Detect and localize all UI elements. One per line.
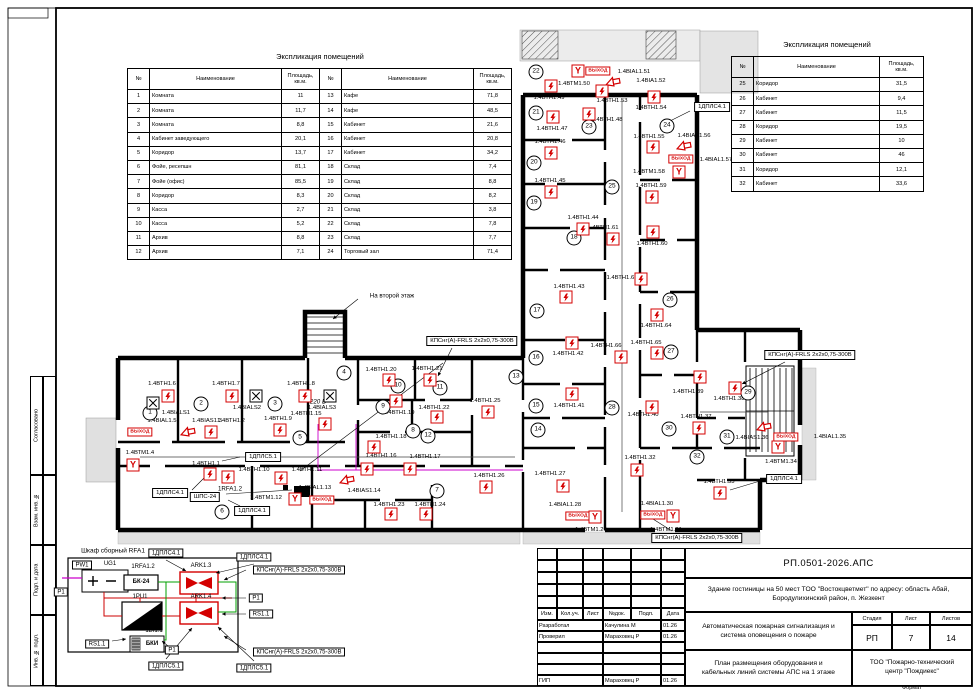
- signature-row: [537, 560, 685, 572]
- cabinet-label: P1: [54, 588, 68, 597]
- signature-row: [537, 664, 685, 675]
- cabinet-label: P1: [249, 594, 263, 603]
- signature-cell: [537, 548, 557, 560]
- signature-row: ГИПМараховец Р01.26: [537, 675, 685, 686]
- frame-side-cell: [43, 615, 56, 686]
- signature-cell: [537, 664, 603, 675]
- signature-header-cell: №док.: [603, 608, 631, 620]
- frame-side-label: Взам. инв. №: [30, 475, 43, 545]
- signature-cell: [631, 560, 661, 572]
- frame-side-label: Инв. № подл.: [30, 615, 43, 686]
- signature-row: [537, 642, 685, 653]
- signature-cell: [603, 642, 661, 653]
- signature-cell: [557, 572, 583, 584]
- cabinet-label: 1RFA1.2: [131, 564, 154, 570]
- cabinet-label: PW1: [72, 561, 92, 570]
- signature-cell: [603, 572, 631, 584]
- frame-side-cell: [43, 545, 56, 615]
- signature-row: Изм.Кол.уч.Лист№док.Подп.Дата: [537, 608, 685, 620]
- signature-header-cell: Подп.: [631, 608, 661, 620]
- cabinet-label: RS1.1: [85, 640, 109, 649]
- signature-cell: Качулина М: [603, 620, 661, 631]
- doc-code-cell: РП.0501-2026.АПС: [685, 548, 972, 578]
- signature-cell: [661, 596, 685, 608]
- signature-header-cell: Изм.: [537, 608, 557, 620]
- cabinet-title: Шкаф сборный RFA1: [81, 548, 145, 555]
- signature-cell: [631, 596, 661, 608]
- cabinet-label: UG1: [104, 561, 116, 567]
- signature-table: Изм.Кол.уч.Лист№док.Подп.ДатаРазработалК…: [537, 548, 685, 686]
- cabinet-label: 1ДПЛС4.1: [236, 553, 271, 562]
- company-cell: ТОО "Пожарно-технический центр "Пождиекс…: [852, 650, 972, 686]
- sheets-value: 14: [930, 625, 972, 650]
- signature-cell: [583, 596, 603, 608]
- signature-header-cell: Лист: [583, 608, 603, 620]
- title-block: Изм.Кол.уч.Лист№док.Подп.ДатаРазработалК…: [537, 548, 972, 686]
- signature-cell: [661, 642, 685, 653]
- signature-cell: [583, 560, 603, 572]
- signature-cell: [661, 653, 685, 664]
- cabinet-label: ARK1.4: [191, 594, 212, 600]
- signature-cell: 01.26: [661, 631, 685, 642]
- frame-side-cell: [43, 475, 56, 545]
- project-title-cell: Автоматическая пожарная сигнализация и с…: [685, 612, 852, 650]
- signature-cell: [537, 572, 557, 584]
- signature-cell: 01.26: [661, 620, 685, 631]
- signature-cell: [583, 548, 603, 560]
- signature-cell: [537, 653, 603, 664]
- signature-cell: [603, 560, 631, 572]
- signature-row: [537, 584, 685, 596]
- cabinet-label: 1ДПЛС4.1: [148, 549, 183, 558]
- sheets-header: Листов: [930, 612, 972, 625]
- cabinet-label: КПСнг(А)-FRLS 2x2x0,75-300В: [253, 648, 345, 657]
- frame-side-cell: [43, 376, 56, 475]
- signature-cell: [603, 584, 631, 596]
- signature-cell: ГИП: [537, 675, 603, 686]
- signature-cell: [557, 584, 583, 596]
- company-name: ТОО "Пожарно-технический центр "Пождиекс…: [853, 659, 971, 677]
- signature-header-cell: Дата: [661, 608, 685, 620]
- frame-side-label: Согласовано: [30, 376, 43, 475]
- signature-row: [537, 653, 685, 664]
- signature-cell: [537, 560, 557, 572]
- object-title: Здание гостиницы на 50 мест ТОО "Востокц…: [686, 586, 971, 603]
- signature-row: РазработалКачулина М01.26: [537, 620, 685, 631]
- signature-cell: [661, 548, 685, 560]
- signature-cell: [631, 548, 661, 560]
- signature-cell: [537, 584, 557, 596]
- cabinet-label: 1BI1.1: [145, 628, 162, 634]
- signature-row: [537, 596, 685, 608]
- sheet-title: План размещения оборудования и кабельных…: [686, 659, 851, 677]
- cabinet-label: 1PU1: [132, 594, 147, 600]
- signature-cell: [603, 596, 631, 608]
- object-cell: Здание гостиницы на 50 мест ТОО "Востокц…: [685, 578, 972, 612]
- cabinet-label: КПСнг(А)-FRLS 2x2x0,75-300В: [253, 566, 345, 575]
- cabinet-label: P1: [165, 646, 179, 655]
- signature-row: ПроверилМараховец Р01.26: [537, 631, 685, 642]
- signature-cell: [603, 653, 661, 664]
- signature-cell: [537, 642, 603, 653]
- sheet-header: Лист: [892, 612, 930, 625]
- cabinet-label: БК-24: [133, 579, 150, 585]
- signature-cell: Проверил: [537, 631, 603, 642]
- signature-cell: 01.26: [661, 675, 685, 686]
- signature-cell: [603, 548, 631, 560]
- signature-row: [537, 548, 685, 560]
- signature-cell: [661, 664, 685, 675]
- cabinet-label: 1ДПЛС5.1: [236, 664, 271, 673]
- signature-cell: [631, 584, 661, 596]
- drawing-sheet: Экспликация помещений №НаименованиеПлоща…: [0, 0, 980, 692]
- signature-cell: [557, 548, 583, 560]
- signature-cell: [661, 572, 685, 584]
- signature-cell: [661, 560, 685, 572]
- sheet-value: 7: [892, 625, 930, 650]
- signature-cell: Мараховец Р: [603, 675, 661, 686]
- signature-cell: [537, 596, 557, 608]
- signature-cell: Разработал: [537, 620, 603, 631]
- signature-cell: [557, 596, 583, 608]
- signature-cell: [631, 572, 661, 584]
- cabinet-label: ARK1.3: [191, 563, 212, 569]
- cabinet-label: 1ДПЛС5.1: [148, 662, 183, 671]
- cabinet-label: БКИ: [146, 641, 158, 647]
- sheet-title-cell: План размещения оборудования и кабельных…: [685, 650, 852, 686]
- signature-row: [537, 572, 685, 584]
- signature-cell: [661, 584, 685, 596]
- signature-cell: Мараховец Р: [603, 631, 661, 642]
- signature-cell: [603, 664, 661, 675]
- frame-side-label: Подп. и дата: [30, 545, 43, 615]
- signature-cell: [557, 560, 583, 572]
- stage-header: Стадия: [852, 612, 892, 625]
- stage-value: РП: [852, 625, 892, 650]
- cabinet-label: RS1.1: [249, 610, 273, 619]
- signature-cell: [583, 572, 603, 584]
- signature-header-cell: Кол.уч.: [557, 608, 583, 620]
- doc-code: РП.0501-2026.АПС: [783, 558, 873, 569]
- project-title: Автоматическая пожарная сигнализация и с…: [686, 622, 851, 640]
- signature-cell: [583, 584, 603, 596]
